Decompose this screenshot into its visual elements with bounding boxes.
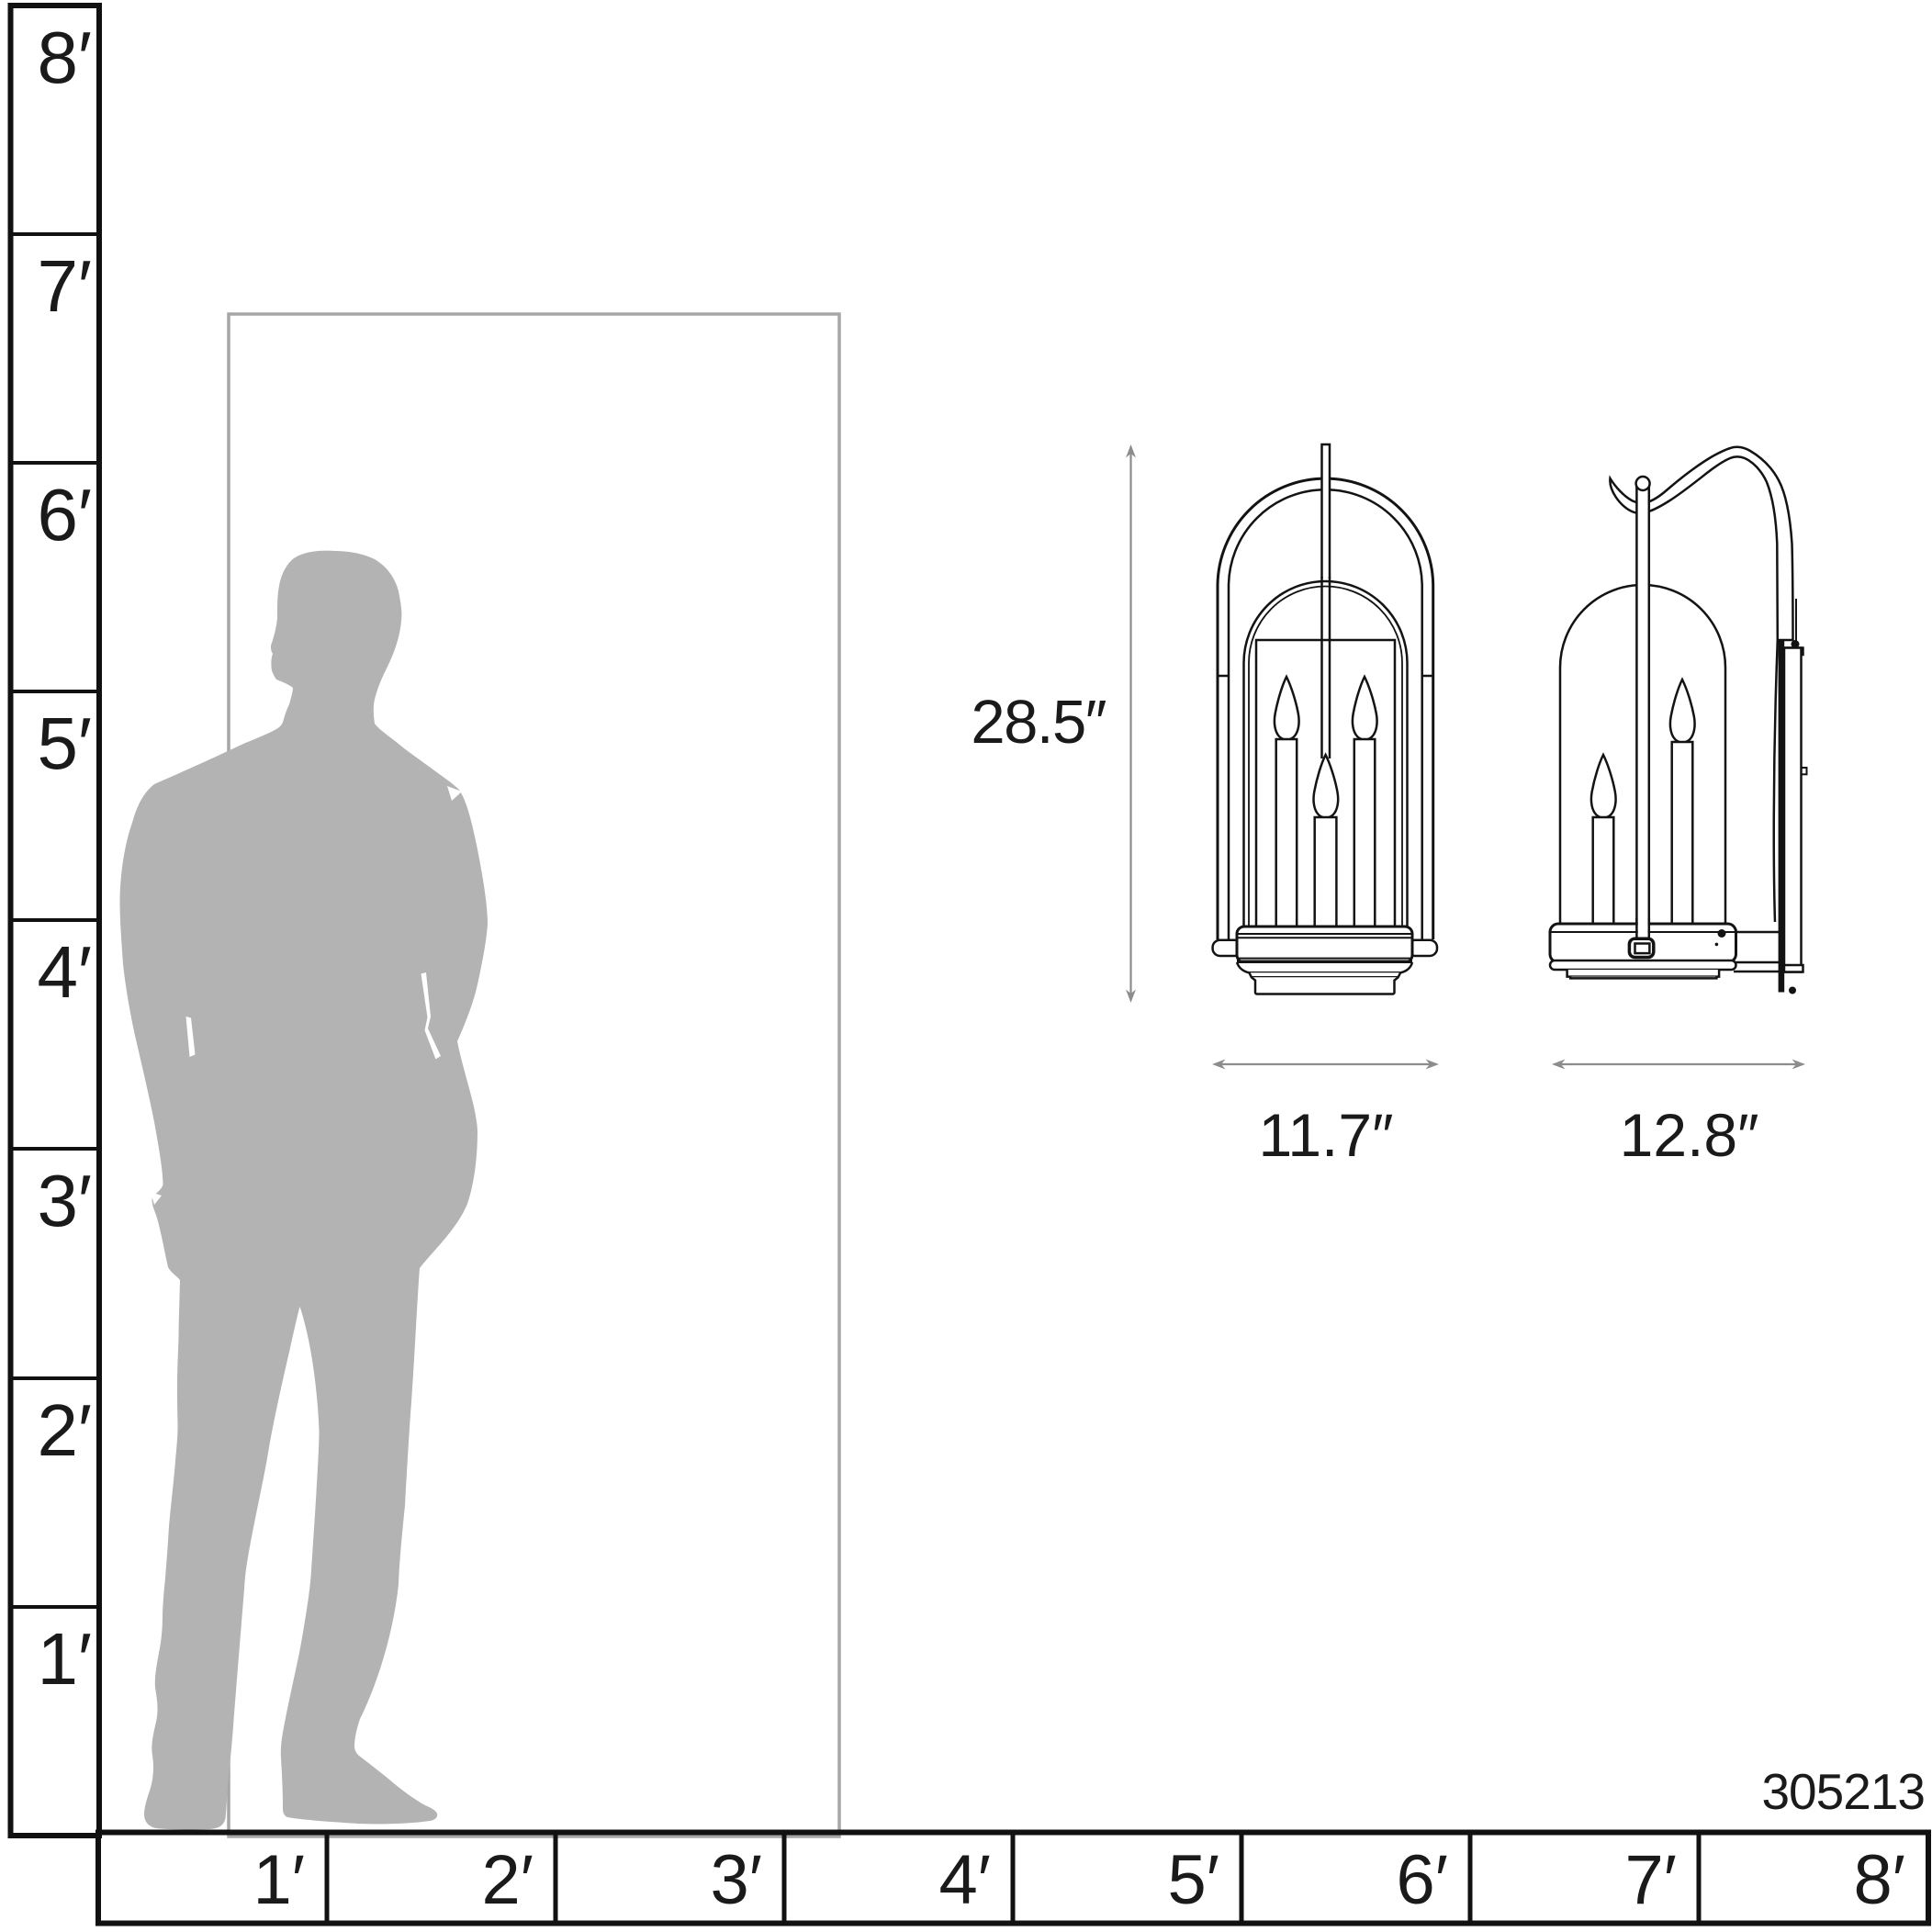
svg-text:7′: 7′ bbox=[38, 245, 93, 327]
svg-text:2′: 2′ bbox=[38, 1389, 93, 1471]
svg-text:4′: 4′ bbox=[38, 931, 93, 1013]
svg-text:28.5″: 28.5″ bbox=[971, 688, 1106, 757]
svg-text:1′: 1′ bbox=[38, 1618, 93, 1700]
svg-text:8′: 8′ bbox=[1853, 1841, 1905, 1919]
svg-text:305213: 305213 bbox=[1761, 1763, 1925, 1820]
svg-text:3′: 3′ bbox=[710, 1841, 762, 1919]
svg-text:2′: 2′ bbox=[481, 1841, 534, 1919]
svg-text:11.7″: 11.7″ bbox=[1259, 1101, 1394, 1169]
svg-text:6′: 6′ bbox=[38, 474, 93, 556]
svg-text:4′: 4′ bbox=[938, 1841, 991, 1919]
svg-text:6′: 6′ bbox=[1396, 1841, 1448, 1919]
svg-text:3′: 3′ bbox=[38, 1160, 93, 1241]
svg-text:8′: 8′ bbox=[38, 17, 93, 98]
svg-text:7′: 7′ bbox=[1624, 1841, 1677, 1919]
svg-text:1′: 1′ bbox=[253, 1841, 305, 1919]
svg-text:5′: 5′ bbox=[38, 702, 93, 784]
svg-text:5′: 5′ bbox=[1167, 1841, 1219, 1919]
svg-text:12.8″: 12.8″ bbox=[1620, 1101, 1759, 1169]
